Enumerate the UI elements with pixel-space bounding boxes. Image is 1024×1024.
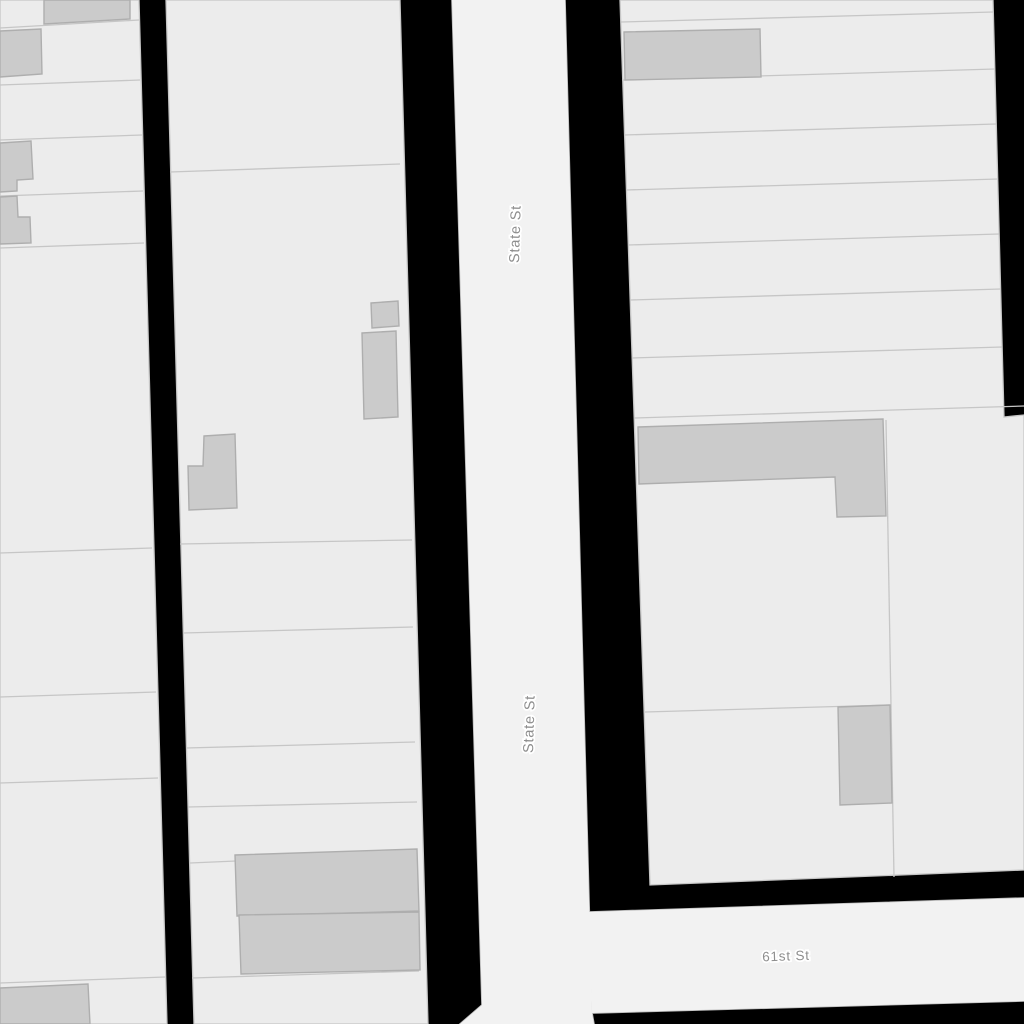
road-label-state-st-lower: State St <box>521 695 539 753</box>
building <box>371 301 399 328</box>
building <box>624 29 761 80</box>
building <box>239 912 420 974</box>
road-label-state-st-upper: State St <box>507 205 525 263</box>
building <box>0 29 42 77</box>
building <box>0 984 90 1024</box>
building <box>44 0 130 24</box>
building <box>838 705 892 805</box>
map-canvas[interactable]: State St State St 61st St <box>0 0 1024 1024</box>
building <box>362 331 398 419</box>
map-svg: State St State St 61st St <box>0 0 1024 1024</box>
road-label-61st-st: 61st St <box>762 948 810 965</box>
building <box>235 849 419 916</box>
